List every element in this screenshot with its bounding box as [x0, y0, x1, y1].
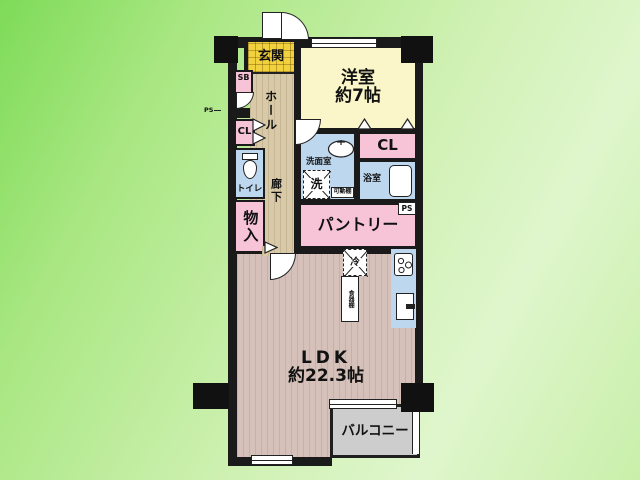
entrance-door-panel	[262, 12, 282, 39]
kitchen-sink-icon	[396, 293, 414, 320]
pillar-top-left	[214, 36, 238, 63]
balcony-label: バルコニー	[341, 424, 408, 438]
shoe-box-label: SB	[236, 74, 251, 82]
window-western-room	[311, 38, 377, 48]
toilet-bowl-icon	[243, 160, 257, 179]
movable-shelf-box: 可動棚	[331, 187, 354, 198]
toilet-tank-icon	[242, 153, 258, 160]
washing-machine-icon: 洗	[303, 170, 330, 199]
room-toilet: トイレ	[234, 148, 265, 199]
cupboard-label: 食器棚	[347, 290, 353, 308]
bathtub-icon	[389, 165, 412, 197]
balcony-open-end	[412, 412, 420, 454]
ldk-size: 約22.3帖	[237, 368, 415, 386]
room-balcony: バルコニー	[330, 404, 420, 458]
pipe-space-left-label: PS	[204, 107, 213, 114]
room-western: 洋室 約7帖	[301, 48, 415, 128]
corridor-door-triangle	[264, 241, 278, 254]
toilet-label: トイレ	[236, 185, 263, 194]
washing-machine-label: 洗	[309, 178, 323, 191]
bathroom-label: 浴室	[363, 175, 381, 184]
pipe-space-right-box: PS	[398, 202, 416, 215]
refrigerator-icon: 冷	[343, 249, 367, 276]
entrance-label: 玄関	[258, 50, 284, 64]
entrance-door-arc	[281, 12, 309, 40]
faucet-icon	[406, 304, 415, 309]
western-room-size: 約7帖	[335, 88, 381, 106]
movable-shelf-label: 可動棚	[333, 189, 351, 195]
wall-hall-right	[294, 40, 301, 254]
room-storage: 物入	[234, 200, 265, 253]
kitchen-counter	[391, 249, 416, 328]
window-ldk-bottom	[251, 455, 293, 465]
pantry-label: パントリー	[318, 217, 399, 234]
window-ldk-balcony	[329, 399, 397, 409]
wall-right	[415, 37, 423, 410]
storage-label: 物入	[242, 210, 258, 244]
closet-right-door-triangle-1	[357, 118, 372, 130]
closet-left-door-triangle-1	[252, 118, 266, 132]
pipe-space-left-note: PS	[204, 107, 221, 114]
room-bathroom: 浴室	[360, 162, 415, 199]
cupboard-box: 食器棚	[341, 276, 359, 322]
washbasin-icon	[327, 138, 355, 158]
pillar-bottom-left	[193, 383, 229, 409]
corridor-label: 廊下	[270, 178, 282, 204]
refrigerator-label: 冷	[349, 258, 361, 268]
pipe-space-left-arrow	[214, 110, 221, 111]
pipe-space-right-label: PS	[402, 205, 413, 213]
washroom-label: 洗面室	[306, 158, 332, 167]
closet-right-door-triangle-2	[400, 118, 415, 130]
closet-left-label: CL	[238, 127, 252, 138]
ldk-label-block: LDK 約22.3帖	[237, 350, 415, 386]
pillar-top-right	[401, 36, 433, 63]
stove-icon	[394, 253, 413, 276]
floor-plan: ホール 廊下 玄関 SB CL トイレ 物入 洋室 約7帖 洗面室	[0, 0, 640, 480]
room-entrance: 玄関	[248, 42, 294, 74]
pillar-bottom-right	[401, 383, 434, 412]
closet-left-door-triangle-2	[252, 131, 266, 145]
closet-right-label: CL	[377, 138, 398, 154]
room-closet-right: CL	[360, 134, 415, 158]
